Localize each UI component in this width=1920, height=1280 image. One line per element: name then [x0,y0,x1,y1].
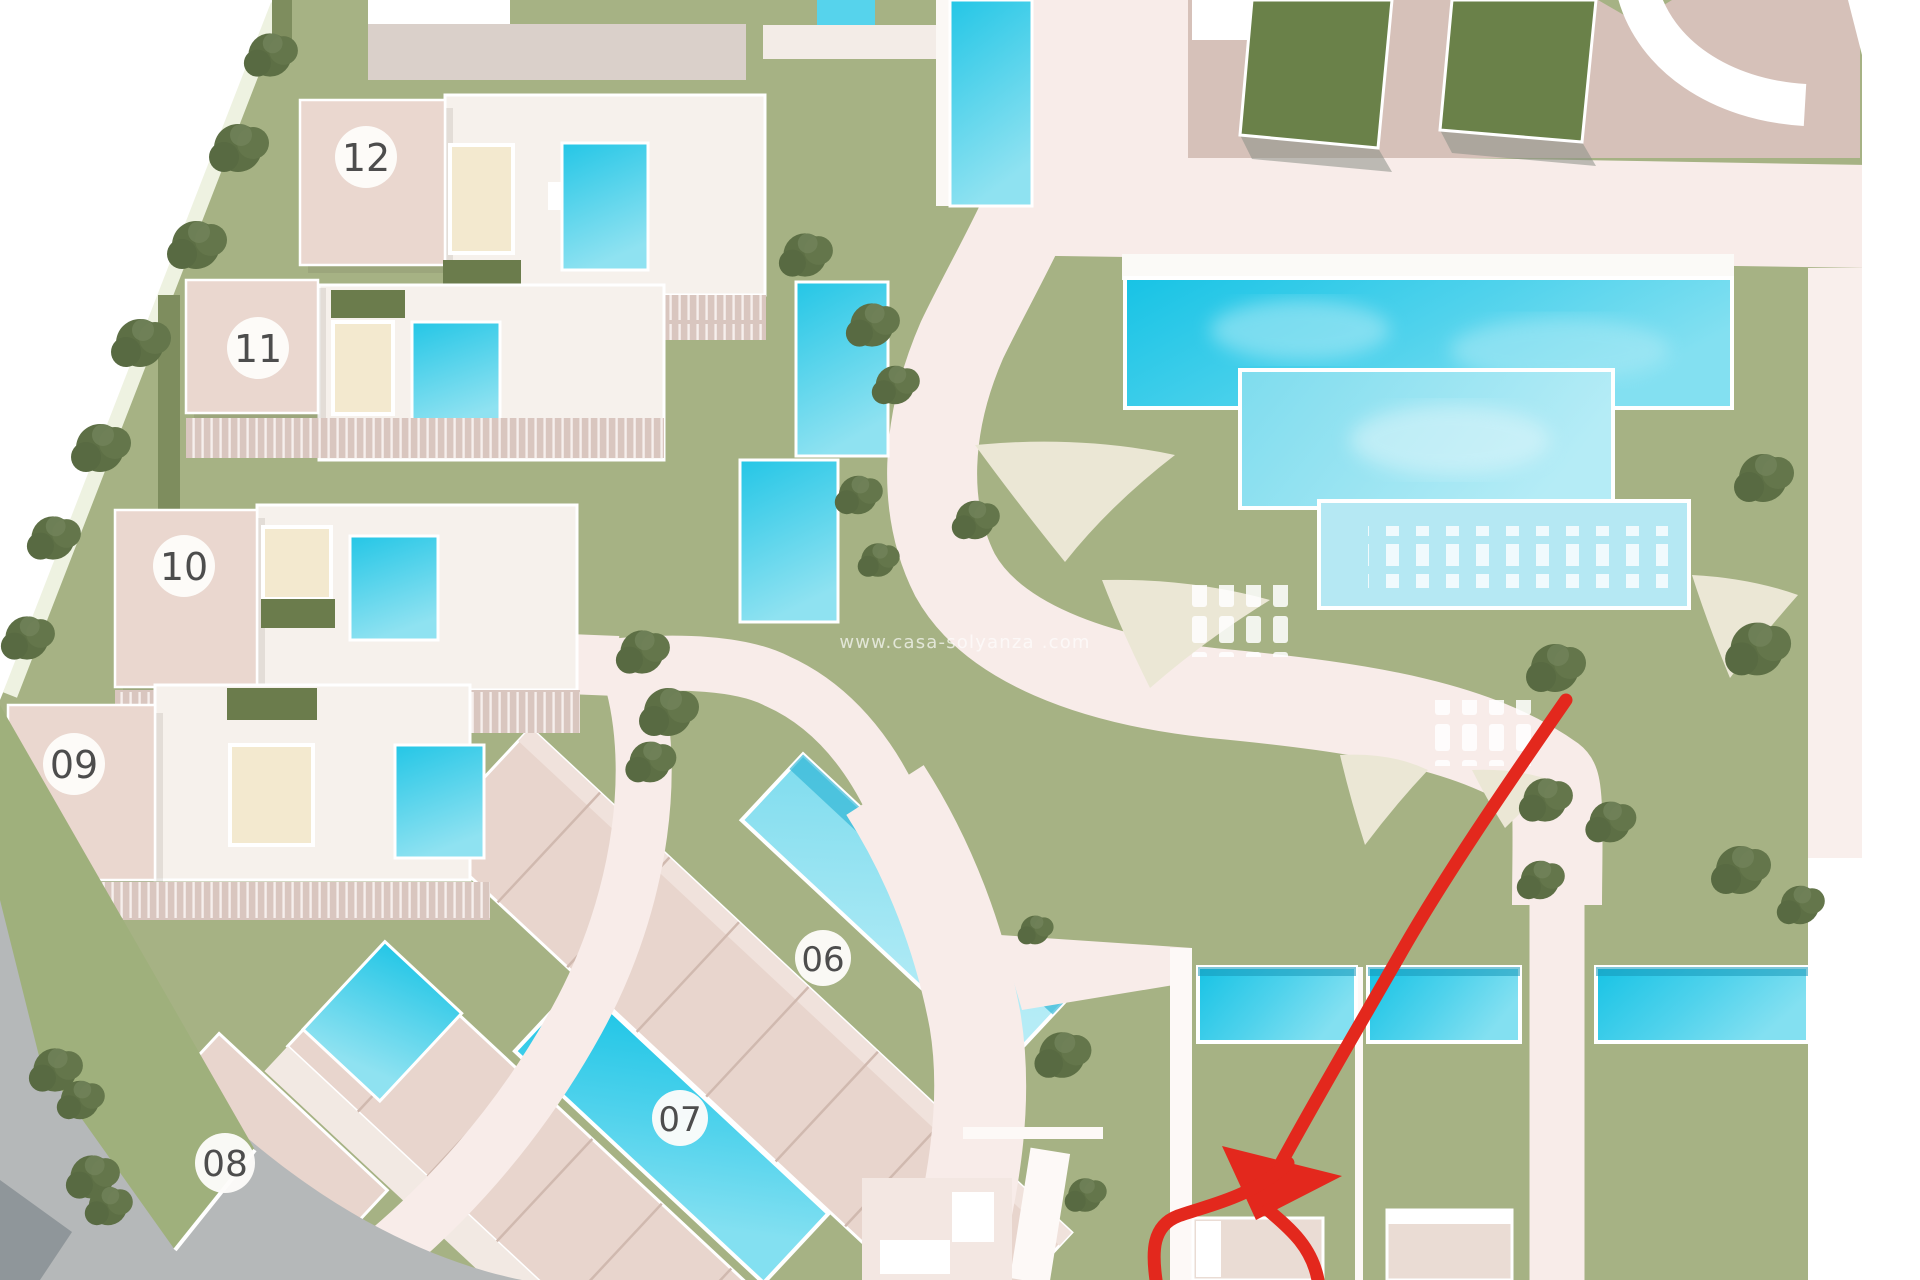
villa-08-label: 08 [202,1144,248,1185]
bottom-center-unit-1 [880,1240,950,1274]
upper-villa-remnant-path [763,25,951,59]
villa-12-marker: 12 [335,126,397,188]
villa-07-marker: 07 [652,1090,708,1146]
villa-11-pergola [333,322,393,414]
pool-1-edge [1198,967,1356,976]
pool-reflection-3 [1350,405,1550,475]
villa-12-pool-step [548,182,563,210]
sun-loungers-a [1183,585,1293,657]
bottom-center-unit-2 [952,1192,994,1242]
villa-10-planter [261,599,335,628]
plot-building-1-deck [1196,1221,1221,1277]
villa-10-marker: 10 [153,535,215,597]
villa-10-label: 10 [160,545,208,589]
villa-09-pool [395,745,484,858]
site-plan-map: 12 11 10 09 08 07 06 www.casa-solyanza .… [0,0,1920,1280]
pool-steps-slats [1368,526,1668,588]
villa-06-label: 06 [801,940,844,980]
villa-08-marker: 08 [195,1133,255,1193]
watermark-text: www.casa-solyanza .com [839,632,1090,653]
villa-12-label: 12 [342,136,390,180]
villa-06-marker: 06 [795,930,851,986]
bottom-center-structures [862,1178,1012,1280]
terrace-notch [1192,0,1254,40]
villa-12-pool [562,143,648,270]
villa-11-driveway [186,418,664,458]
plot-pool-1 [1198,967,1356,1042]
villa-09-planter [227,688,317,720]
villa-11-label: 11 [234,327,282,371]
upper-villa-remnant-roof [368,24,746,80]
lap-pool-deck [936,0,950,206]
plot-pool-3 [1596,967,1808,1042]
lap-pool-10 [740,460,838,622]
right-pale-margin [1808,268,1868,858]
villa-09-marker: 09 [43,733,105,795]
villa-10-pergola [263,527,331,599]
plot-line-h [963,1127,1103,1139]
plot-building-2-deck [1387,1210,1512,1224]
right-white-margin-bottom [1808,858,1920,1280]
villa-09-label: 09 [50,743,98,787]
green-roof-building-a [1240,0,1392,148]
villa-07-label: 07 [658,1100,701,1140]
villa-10-pool [350,536,438,640]
top-horizontal-path [990,150,1868,268]
green-roof-building-b [1440,0,1596,142]
villa-11-marker: 11 [227,317,289,379]
lap-pool-12 [950,0,1032,206]
upper-villa-pool-sliver [817,0,875,25]
villa-11-planter [331,290,405,318]
villa-12-pergola [450,145,513,253]
top-path-widening [1075,0,1193,165]
top-right-terrace [1188,0,1920,172]
pool-3-edge [1596,967,1808,976]
villa-09-pergola [230,745,313,845]
pool-reflection-1 [1210,300,1390,360]
villa-11-pool [412,322,500,428]
right-white-margin-top [1862,0,1920,860]
plot-lane-white [1170,948,1192,1280]
upper-villa-remnant-deck [368,0,510,24]
site-plan-page: 12 11 10 09 08 07 06 www.casa-solyanza .… [0,0,1920,1280]
